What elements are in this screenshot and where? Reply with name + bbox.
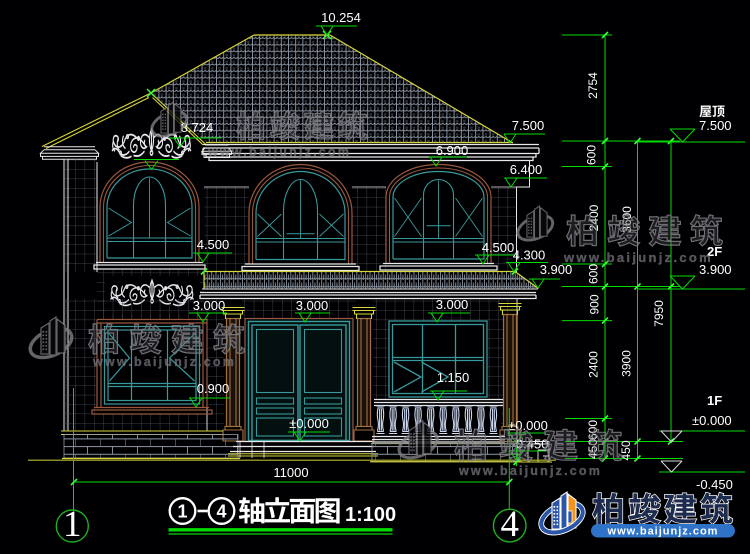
svg-text:11000: 11000: [273, 465, 308, 480]
svg-text:www.baijunjz.com: www.baijunjz.com: [92, 355, 236, 369]
svg-text:6.400: 6.400: [510, 162, 543, 177]
svg-text:4.500: 4.500: [482, 240, 515, 255]
svg-text:www.baijunjz.com: www.baijunjz.com: [458, 464, 602, 478]
svg-text:600: 600: [587, 264, 601, 284]
svg-text:7.500: 7.500: [512, 118, 545, 133]
svg-text:2400: 2400: [587, 351, 601, 378]
svg-text:www.baijunjz.com: www.baijunjz.com: [207, 145, 351, 159]
svg-text:900: 900: [588, 294, 602, 314]
svg-text:±0.000: ±0.000: [692, 413, 732, 428]
svg-text:±0.000: ±0.000: [508, 418, 548, 433]
svg-text:3.000: 3.000: [296, 298, 329, 313]
svg-text:2754: 2754: [586, 72, 600, 99]
svg-text:1:100: 1:100: [345, 504, 396, 526]
svg-text:7950: 7950: [652, 300, 666, 327]
svg-text:4: 4: [216, 502, 226, 522]
svg-text:0.900: 0.900: [197, 381, 230, 396]
svg-text:3.000: 3.000: [436, 297, 469, 312]
svg-text:10.254: 10.254: [321, 10, 361, 25]
svg-text:www.baijunjz.com: www.baijunjz.com: [607, 526, 719, 538]
svg-text:4.500: 4.500: [197, 237, 230, 252]
svg-text:6.900: 6.900: [436, 143, 469, 158]
svg-text:1F: 1F: [707, 393, 722, 408]
svg-text:4: 4: [500, 504, 519, 545]
svg-text:4.300: 4.300: [513, 248, 546, 263]
svg-text:7.500: 7.500: [699, 118, 732, 133]
svg-text:-0.450: -0.450: [696, 477, 733, 492]
svg-text:3.000: 3.000: [193, 298, 226, 313]
svg-text:www.baijunjz.com: www.baijunjz.com: [563, 250, 713, 265]
svg-text:1: 1: [63, 504, 82, 545]
svg-text:600: 600: [585, 145, 599, 165]
svg-text:±0.000: ±0.000: [289, 416, 329, 431]
svg-text:3900: 3900: [620, 350, 634, 377]
svg-text:1: 1: [177, 502, 187, 522]
svg-text:1.150: 1.150: [437, 370, 470, 385]
